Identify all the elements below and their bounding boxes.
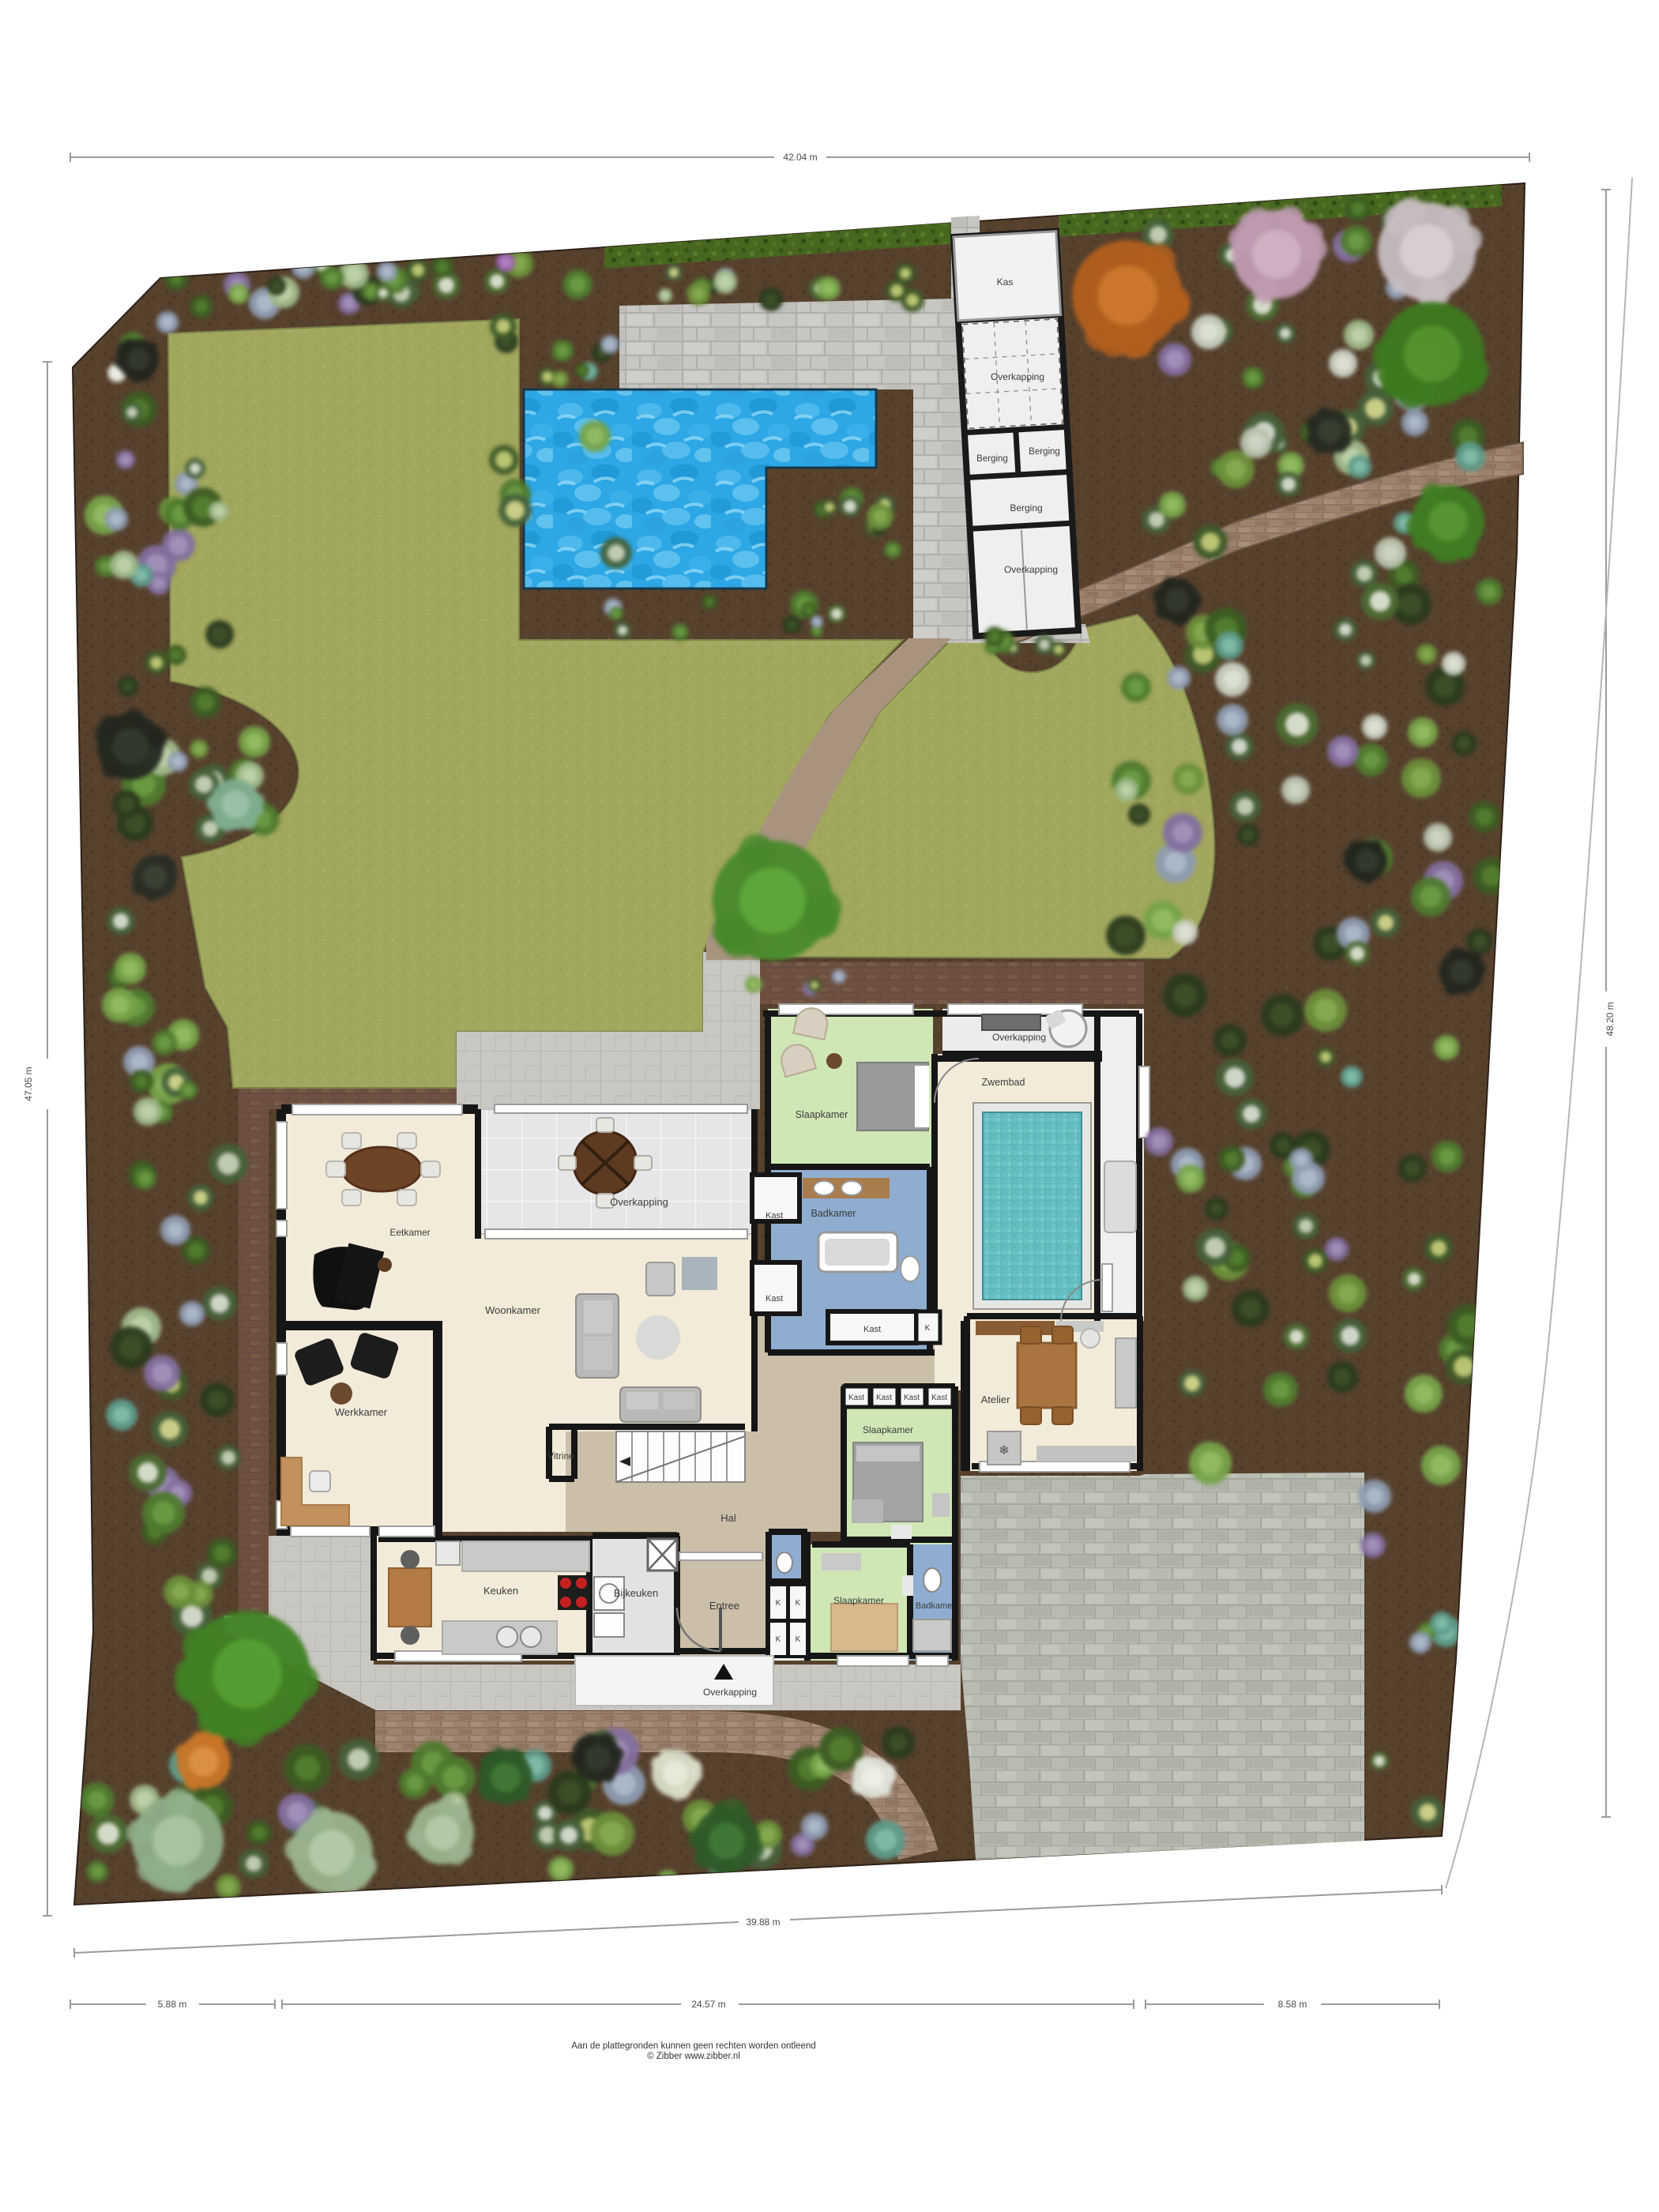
svg-text:Berging: Berging xyxy=(976,454,1008,464)
svg-text:47.05 m: 47.05 m xyxy=(23,1066,34,1100)
svg-text:Kast: Kast xyxy=(931,1394,947,1402)
svg-text:K: K xyxy=(796,1635,801,1644)
svg-text:42.04 m: 42.04 m xyxy=(783,152,817,163)
svg-text:Overkapping: Overkapping xyxy=(992,1032,1046,1043)
svg-text:Overkapping: Overkapping xyxy=(703,1687,757,1698)
svg-text:Slaapkamer: Slaapkamer xyxy=(863,1424,913,1435)
svg-text:Werkkamer: Werkkamer xyxy=(335,1406,388,1418)
svg-text:K: K xyxy=(776,1635,781,1644)
svg-text:39.88 m: 39.88 m xyxy=(746,1917,780,1928)
svg-text:Berging: Berging xyxy=(1029,447,1060,457)
svg-text:K: K xyxy=(925,1324,931,1333)
svg-text:K: K xyxy=(796,1599,801,1608)
svg-text:8.58 m: 8.58 m xyxy=(1278,1999,1307,2010)
svg-text:Slaapkamer: Slaapkamer xyxy=(833,1595,884,1606)
svg-text:Kas: Kas xyxy=(997,276,1014,288)
svg-text:Badkamer: Badkamer xyxy=(811,1208,856,1219)
svg-text:Kast: Kast xyxy=(766,1294,783,1303)
svg-text:K: K xyxy=(776,1599,781,1608)
svg-text:Entree: Entree xyxy=(709,1600,739,1612)
svg-text:Berging: Berging xyxy=(1010,502,1042,513)
svg-text:Zwembad: Zwembad xyxy=(982,1077,1025,1088)
svg-text:Vitrine: Vitrine xyxy=(547,1450,574,1461)
svg-text:Kast: Kast xyxy=(848,1394,864,1402)
svg-text:Kast: Kast xyxy=(876,1394,892,1402)
svg-text:Bijkeuken: Bijkeuken xyxy=(614,1587,658,1599)
svg-text:❄: ❄ xyxy=(999,1444,1009,1458)
svg-text:Keuken: Keuken xyxy=(483,1585,518,1597)
svg-text:Badkame: Badkame xyxy=(916,1601,952,1611)
svg-text:Overkapping: Overkapping xyxy=(610,1196,668,1208)
svg-text:Overkapping: Overkapping xyxy=(1004,564,1058,575)
svg-text:5.88 m: 5.88 m xyxy=(158,1999,187,2010)
svg-text:Aan de plattegronden kunnen ge: Aan de plattegronden kunnen geen rechten… xyxy=(571,2041,815,2051)
svg-text:Overkapping: Overkapping xyxy=(991,371,1044,382)
svg-text:© Zibber www.zibber.nl: © Zibber www.zibber.nl xyxy=(647,2052,740,2061)
svg-text:Hal: Hal xyxy=(720,1512,736,1524)
svg-text:Eetkamer: Eetkamer xyxy=(389,1227,430,1238)
svg-text:Slaapkamer: Slaapkamer xyxy=(796,1109,848,1120)
svg-text:Atelier: Atelier xyxy=(981,1394,1011,1405)
svg-text:Kast: Kast xyxy=(904,1394,920,1402)
svg-text:48.20 m: 48.20 m xyxy=(1604,1002,1616,1036)
svg-text:Kast: Kast xyxy=(766,1211,783,1221)
svg-text:24.57 m: 24.57 m xyxy=(691,1999,725,2010)
svg-text:Woonkamer: Woonkamer xyxy=(485,1304,541,1316)
svg-text:Kast: Kast xyxy=(863,1325,881,1334)
